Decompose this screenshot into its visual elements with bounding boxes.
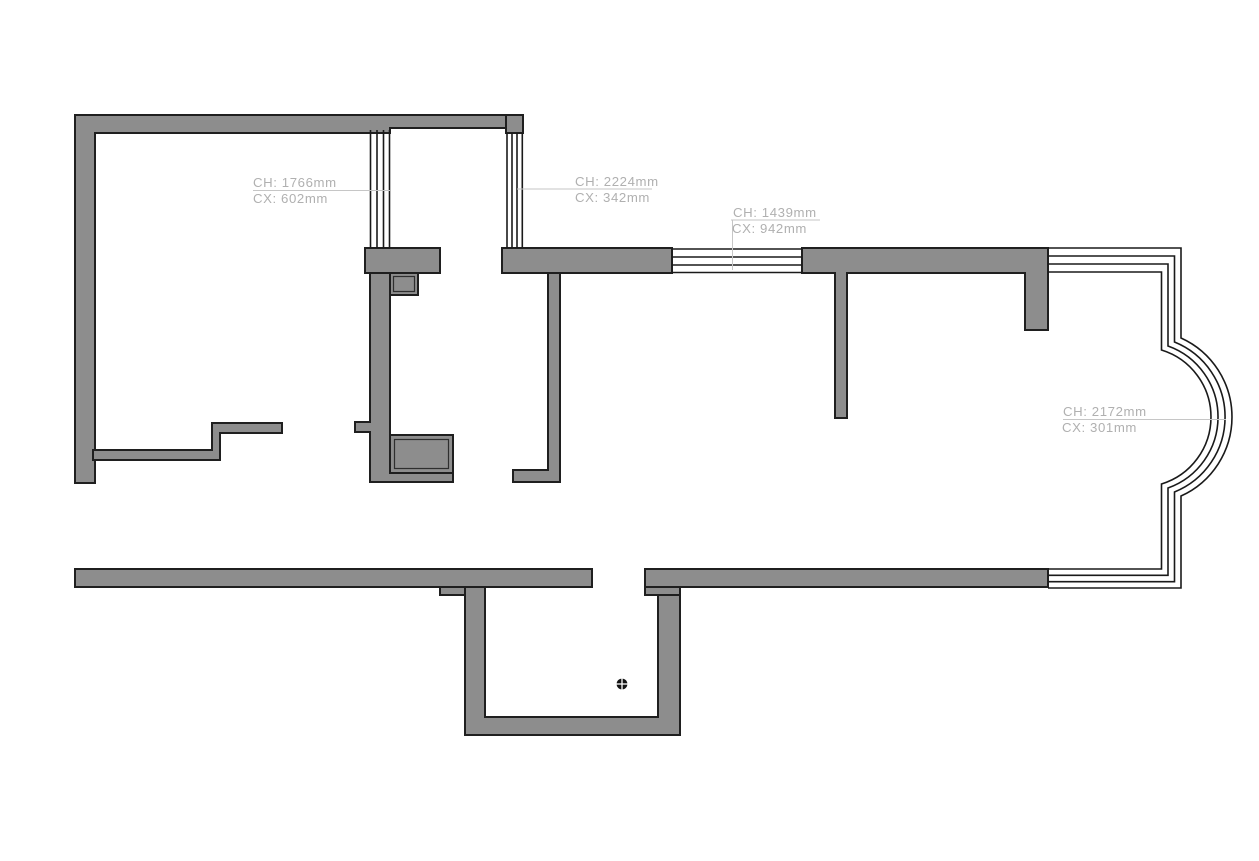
ch-label: CH: 1439mm bbox=[733, 205, 817, 220]
counter-block bbox=[390, 435, 453, 473]
floor-plan-canvas: CH: 1766mm CX: 602mm CH: 2224mm CX: 342m… bbox=[0, 0, 1259, 861]
floor-drain-icon bbox=[616, 678, 628, 690]
floor-plan-drawing: CH: 1766mm CX: 602mm CH: 2224mm CX: 342m… bbox=[0, 0, 1259, 861]
wall-interior-step bbox=[93, 423, 282, 460]
wall-bottom-right bbox=[645, 569, 1048, 587]
walls bbox=[75, 115, 1048, 735]
wall-window-cap bbox=[506, 115, 523, 133]
window-left bbox=[371, 130, 390, 248]
wall-l-shape bbox=[513, 273, 560, 482]
balcony-walls bbox=[465, 587, 680, 735]
cx-label: CX: 942mm bbox=[732, 221, 807, 236]
cx-label: CX: 342mm bbox=[575, 190, 650, 205]
wall-block-left bbox=[365, 248, 440, 273]
dimension-label-small-room-window: CH: 2224mm CX: 342mm bbox=[517, 174, 659, 205]
wall-top-left-exterior bbox=[75, 115, 523, 483]
ch-label: CH: 2224mm bbox=[575, 174, 659, 189]
wall-top-right bbox=[802, 248, 1048, 418]
dimension-label-left-window: CH: 1766mm CX: 602mm bbox=[253, 175, 390, 206]
cx-label: CX: 602mm bbox=[253, 191, 328, 206]
dimension-label-bay-window: CH: 2172mm CX: 301mm bbox=[1062, 404, 1226, 435]
ch-label: CH: 1766mm bbox=[253, 175, 337, 190]
window-small-room-right bbox=[507, 133, 522, 248]
cx-label: CX: 301mm bbox=[1062, 420, 1137, 435]
wall-block-center bbox=[502, 248, 672, 273]
ch-label: CH: 2172mm bbox=[1063, 404, 1147, 419]
wall-bottom-left bbox=[75, 569, 592, 587]
window-top-center bbox=[672, 249, 802, 273]
